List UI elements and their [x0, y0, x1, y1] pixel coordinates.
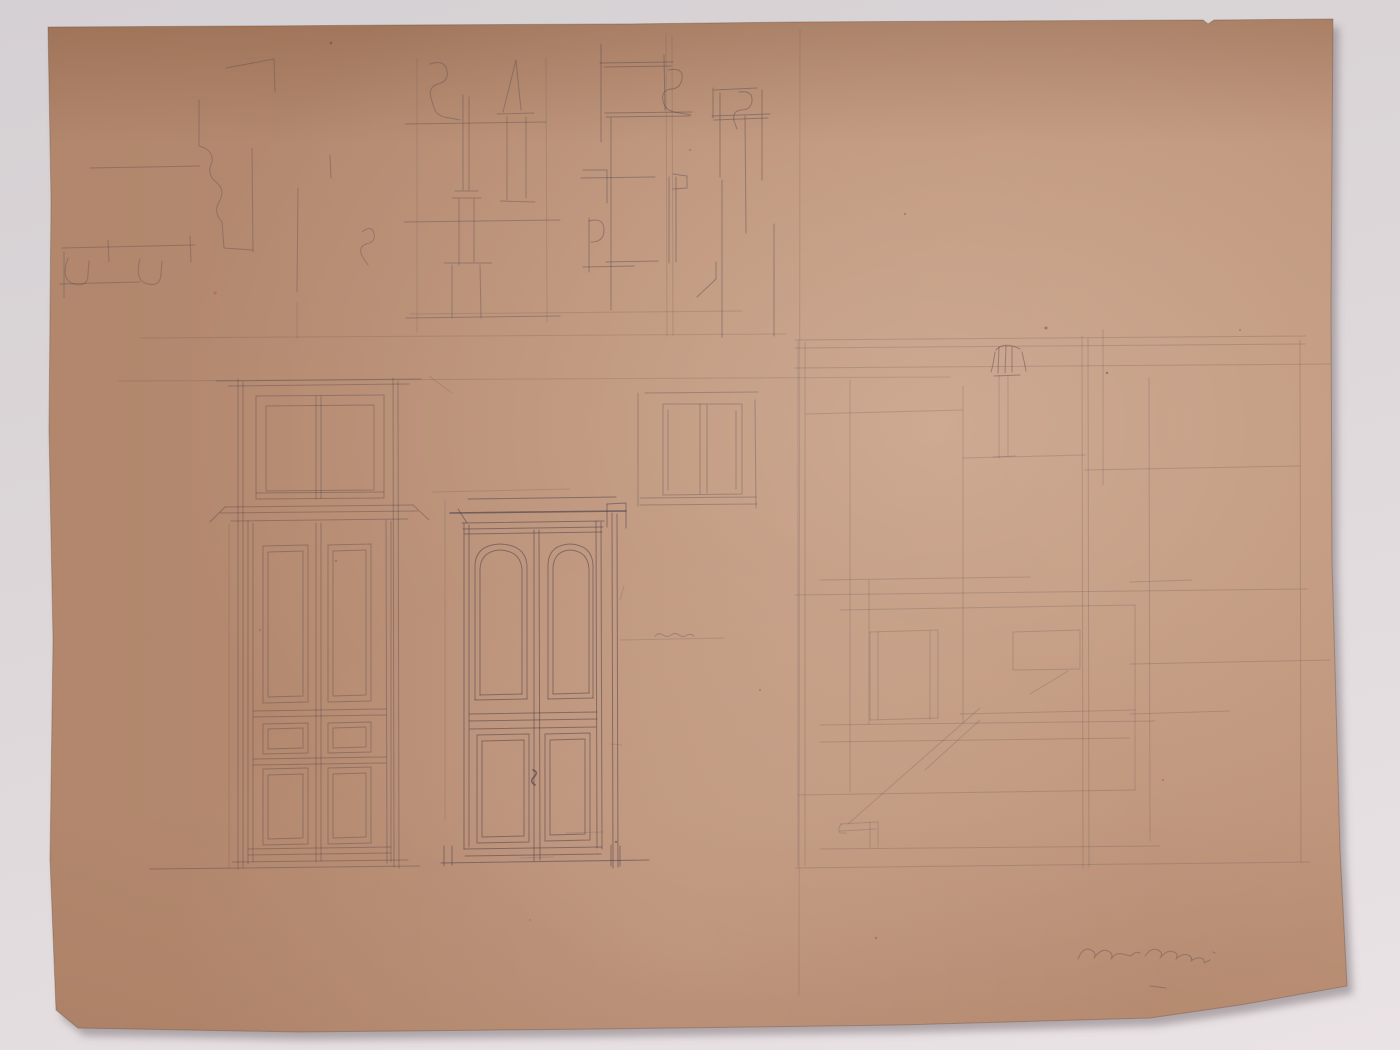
paper-fleck	[875, 937, 877, 939]
paper-fleck	[330, 42, 333, 45]
paper-fleck	[259, 629, 261, 631]
paper-fleck	[1239, 329, 1241, 331]
drawing-photograph	[0, 0, 1400, 1050]
paper-fleck	[759, 689, 761, 691]
paper-fleck	[335, 560, 337, 562]
paper-fleck	[615, 841, 617, 843]
paper-fleck	[689, 149, 691, 151]
photo-backdrop	[0, 0, 1400, 1050]
paper-fleck	[1045, 327, 1048, 330]
paper-fleck	[529, 919, 531, 921]
paper-fleck	[213, 291, 216, 294]
paper-fleck	[904, 213, 906, 215]
paper-fleck	[1106, 372, 1108, 374]
paper-fleck	[1162, 779, 1164, 781]
paper-sheet	[40, 14, 1355, 1050]
